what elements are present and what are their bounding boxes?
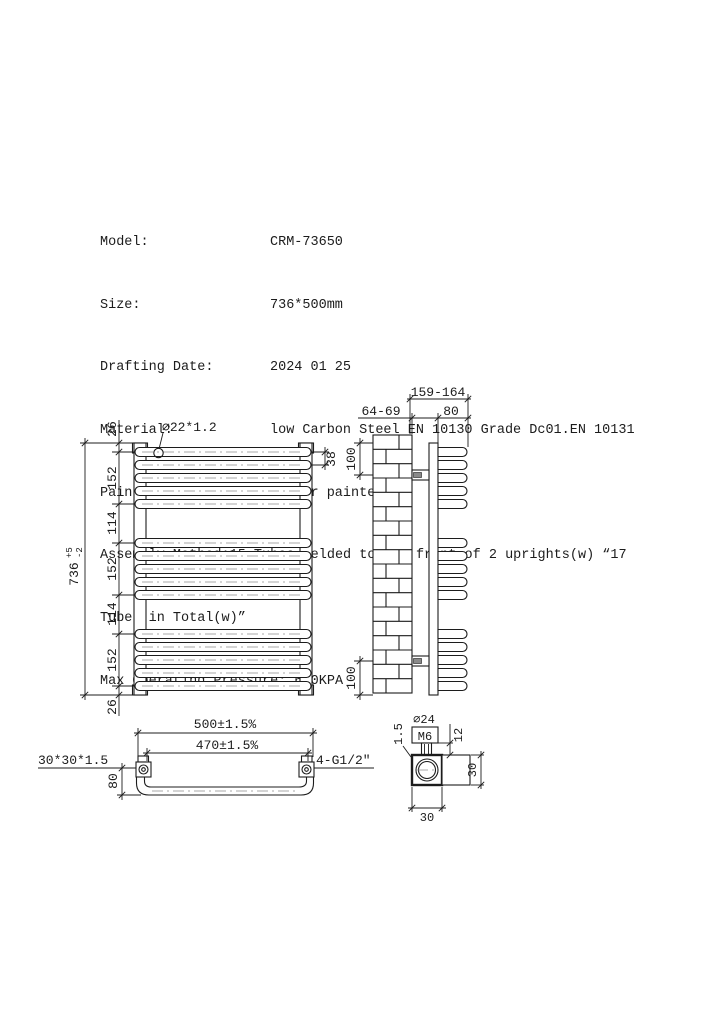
connections-label: 4-G1/2″: [316, 753, 371, 768]
washer-dia-label: ⌀24: [413, 713, 435, 727]
tube-end: [438, 565, 467, 574]
tube-end: [438, 500, 467, 509]
drawing-sheet: Model: CRM-73650 Size: 736*500mm Draftin…: [0, 0, 720, 1018]
bracket-bottom-label: 100: [344, 666, 359, 689]
width-outer-label: 500±1.5%: [194, 717, 257, 732]
thread-label: M6: [418, 730, 432, 744]
height-total-label: 736 +5 -2: [65, 547, 85, 586]
leader-line: [159, 433, 163, 449]
tube-end: [438, 656, 467, 665]
segment-label: 26: [105, 421, 120, 437]
u-tube-outer: [137, 777, 314, 795]
right-fitting: [299, 762, 314, 777]
tube-spacing-label: 38: [324, 451, 339, 467]
bracket-height-label: 30: [466, 763, 480, 777]
side-view: 159-164 64-69 80 100 100: [344, 385, 471, 700]
tube-size-label: ⌀22*1.2: [162, 420, 217, 435]
tube-end: [438, 669, 467, 678]
tube-end: [438, 461, 467, 470]
tube-end: [438, 539, 467, 548]
tube-end: [438, 591, 467, 600]
left-fitting: [136, 762, 151, 777]
segment-label: 152: [105, 557, 120, 580]
height-tol-minus: -2: [75, 547, 85, 558]
tube-end: [438, 552, 467, 561]
tube-end: [438, 630, 467, 639]
segment-label: 152: [105, 466, 120, 489]
bracket-bolt: [414, 473, 422, 478]
segment-label: 26: [105, 699, 120, 715]
height-value: 736: [67, 562, 82, 585]
plate-thickness-label: 1.5: [392, 723, 406, 745]
side-tube-ends: [438, 448, 467, 691]
bolt-height-label: 12: [452, 728, 466, 742]
bracket-top-label: 100: [344, 447, 359, 470]
tube-depth-label: 80: [443, 404, 459, 419]
tube-drop-label: 80: [106, 773, 121, 789]
bolt-shank: [422, 743, 432, 755]
bracket-width-label: 30: [420, 811, 434, 825]
width-inner-label: 470±1.5%: [196, 738, 259, 753]
segment-label: 114: [105, 511, 120, 535]
upright-side: [429, 443, 438, 695]
u-tube-inner: [145, 777, 307, 787]
front-view: ⌀22*1.2 38 736 +5 -2 26 152 114 152 114 …: [65, 420, 339, 716]
wall-gap-label: 64-69: [361, 404, 400, 419]
leader-line-thickness: [403, 746, 411, 757]
tube-end: [438, 682, 467, 691]
upright-profile-label: 30*30*1.5: [38, 753, 108, 768]
segment-label: 114: [105, 602, 120, 626]
front-tubes: [135, 448, 311, 691]
bottom-view: 500±1.5% 470±1.5% 30*30*1.5 4-G1/2″ 80: [38, 717, 374, 800]
depth-range-label: 159-164: [411, 385, 466, 400]
tube-end: [438, 448, 467, 457]
detail-view: ⌀24 M6 1.5 12 30 30: [392, 713, 484, 825]
segment-label: 152: [105, 648, 120, 671]
bracket-bolt: [414, 659, 422, 664]
fitting-cap: [302, 756, 313, 762]
technical-drawing: ⌀22*1.2 38 736 +5 -2 26 152 114 152 114 …: [0, 0, 720, 1018]
tube-end: [438, 643, 467, 652]
height-tol-plus: +5: [65, 547, 75, 558]
tube-end: [438, 578, 467, 587]
tube-end: [438, 474, 467, 483]
tube-end: [438, 487, 467, 496]
